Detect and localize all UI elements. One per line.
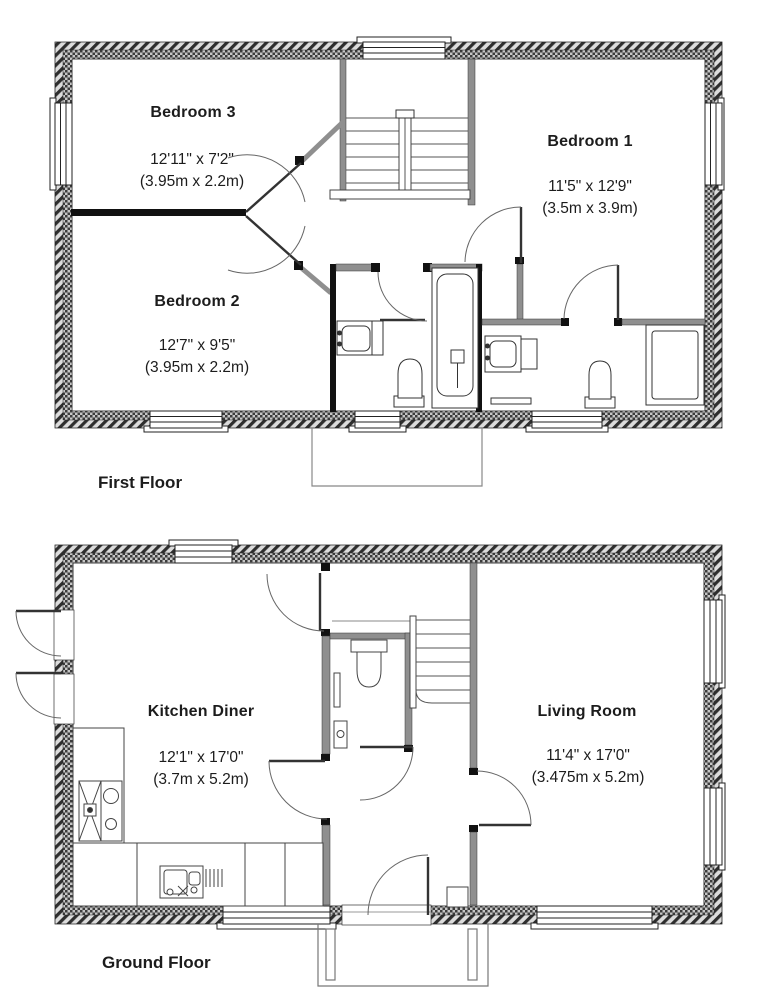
kitchen-door-bottom — [269, 761, 327, 819]
living-room-door — [477, 771, 531, 825]
window-right-living-1 — [704, 595, 725, 688]
window-bottom-ensuite — [526, 411, 608, 432]
bedroom-divider-wall — [71, 209, 246, 216]
ensuite-door — [564, 265, 618, 320]
french-door-opening-2 — [54, 674, 74, 724]
chamfer-wall-lower — [299, 266, 331, 293]
stair-wall-left — [340, 59, 346, 201]
window-top-kitchen — [169, 540, 238, 563]
hall-living-wall — [470, 563, 477, 768]
ensuite-toilet — [585, 361, 615, 408]
floorplan-page: Bedroom 3 12'11" x 7'2" (3.95m x 2.2m) B… — [0, 0, 774, 1007]
dims-metric: (3.5m x 3.9m) — [542, 198, 638, 220]
dims-imperial: 11'5" x 12'9" — [542, 176, 638, 198]
hob — [79, 781, 122, 841]
floor-label-ground: Ground Floor — [102, 953, 211, 973]
bedroom1-wall — [517, 264, 523, 322]
wc-toilet — [351, 640, 387, 687]
floor-label-first: First Floor — [98, 473, 182, 493]
bathroom-toilet — [394, 359, 424, 407]
kitchen-door-top — [267, 573, 324, 631]
dims-metric: (3.95m x 2.2m) — [140, 171, 244, 193]
bathroom-door — [378, 272, 427, 321]
room-dims-kitchen-diner: 12'1" x 17'0" (3.7m x 5.2m) — [153, 747, 249, 791]
window-right-bedroom1 — [705, 98, 724, 190]
dims-imperial: 11'4" x 17'0" — [532, 745, 645, 767]
bath — [432, 268, 478, 408]
french-door-opening-1 — [54, 610, 74, 660]
dims-metric: (3.95m x 2.2m) — [145, 357, 249, 379]
room-label-living-room: Living Room — [537, 703, 636, 721]
bedroom2-door — [228, 216, 305, 273]
window-bottom-bedroom2 — [144, 411, 228, 432]
shower — [646, 325, 704, 405]
dims-metric: (3.7m x 5.2m) — [153, 769, 249, 791]
hall-cupboard — [447, 887, 468, 907]
room-dims-living-room: 11'4" x 17'0" (3.475m x 5.2m) — [532, 745, 645, 789]
landing-rail — [330, 190, 470, 199]
room-label-kitchen-diner: Kitchen Diner — [148, 703, 255, 721]
porch-post-right — [468, 929, 477, 980]
room-dims-bedroom-1: 11'5" x 12'9" (3.5m x 3.9m) — [542, 176, 638, 220]
front-door-opening — [342, 905, 431, 925]
room-label-bedroom-2: Bedroom 2 — [154, 293, 239, 311]
room-label-bedroom-1: Bedroom 1 — [547, 133, 632, 151]
room-dims-bedroom-2: 12'7" x 9'5" (3.95m x 2.2m) — [145, 335, 249, 379]
wc-wall-top — [330, 633, 412, 639]
bathroom-wall-left — [330, 264, 336, 412]
dims-metric: (3.475m x 5.2m) — [532, 767, 645, 789]
window-bottom-bathroom — [349, 411, 406, 432]
ensuite-sink — [485, 336, 537, 372]
window-top-landing — [357, 37, 451, 59]
chamfer-wall-upper — [300, 122, 343, 163]
staircase-ground-floor — [410, 616, 470, 708]
room-dims-bedroom-3: 12'11" x 7'2" (3.95m x 2.2m) — [140, 149, 244, 193]
wc-door — [360, 747, 413, 800]
wc-sink — [334, 721, 347, 748]
bedroom1-door — [465, 207, 521, 263]
kitchen-hall-wall — [322, 636, 330, 754]
staircase-first-floor — [330, 110, 470, 199]
porch-post-left — [326, 929, 335, 980]
wc-radiator — [334, 673, 340, 707]
porch-outline-first-floor — [312, 428, 482, 486]
porch-ground-floor — [318, 924, 488, 986]
bathroom-sink — [337, 321, 383, 355]
room-label-bedroom-3: Bedroom 3 — [150, 104, 235, 122]
stair-wall-right — [468, 59, 475, 205]
window-right-living-2 — [704, 783, 725, 870]
dims-imperial: 12'11" x 7'2" — [140, 149, 244, 171]
dims-imperial: 12'1" x 17'0" — [153, 747, 249, 769]
window-bottom-living — [531, 906, 658, 929]
window-left-bedroom3 — [50, 98, 72, 190]
dims-imperial: 12'7" x 9'5" — [145, 335, 249, 357]
ensuite-wall-right — [622, 319, 705, 325]
floorplan-drawing — [0, 0, 774, 1007]
ensuite-wall-left — [482, 319, 562, 325]
radiator — [491, 398, 531, 404]
